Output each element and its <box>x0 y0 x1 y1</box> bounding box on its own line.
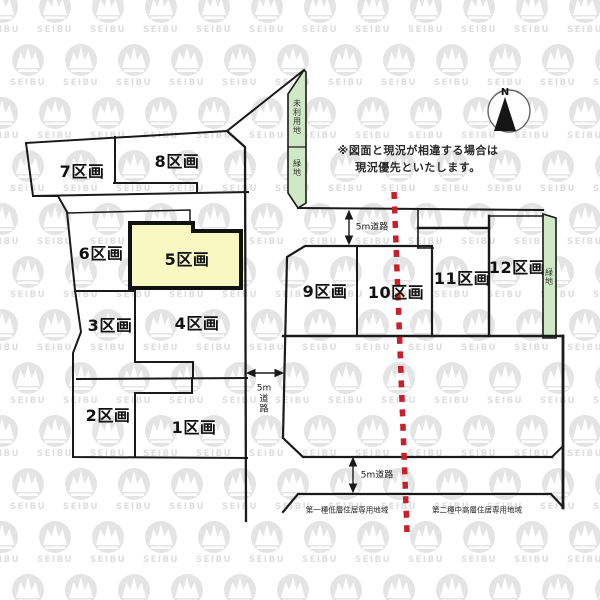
plot-label-3: 3区画 <box>88 312 133 336</box>
plot-label-9: 9区画 <box>303 278 348 302</box>
road-label-left-char1: 道 <box>257 394 272 405</box>
road-label-top: 5m道路 <box>356 220 389 233</box>
plot-label-12: 12区画 <box>489 254 545 278</box>
arrow-top-road <box>346 211 353 244</box>
road-label-bottom: 5m道路 <box>361 468 394 481</box>
left-block-boundaries <box>26 70 304 521</box>
plot-label-5: 5区画 <box>165 246 210 270</box>
compass: N <box>488 87 530 132</box>
plot-label-1: 1区画 <box>172 414 217 438</box>
disclaimer-note: ※図面と現況が相違する場合は 現況優先といたします。 <box>308 143 528 176</box>
plot-label-7: 7区画 <box>60 158 105 182</box>
unused-land-label: 未利用地 <box>292 99 303 135</box>
green-label-right: 緑地 <box>544 268 555 286</box>
arrow-left-road <box>247 370 283 377</box>
plot-label-4: 4区画 <box>175 310 220 334</box>
plot-label-2: 2区画 <box>86 402 131 426</box>
zoning-label-left: 第一種低層住居専用地域 <box>306 505 389 516</box>
plot-label-11: 11区画 <box>434 265 490 289</box>
road-label-left-width: 5m <box>257 383 272 394</box>
arrow-bottom-road <box>350 458 357 492</box>
red-boundary-dotted-line <box>394 192 407 532</box>
green-strip-top <box>288 70 306 208</box>
plot-label-10: 10区画 <box>368 279 424 303</box>
green-label-left: 緑地 <box>292 159 303 177</box>
dimension-arrows <box>247 211 357 492</box>
disclaimer-line-1: ※図面と現況が相違する場合は <box>308 143 528 160</box>
plot-map: SEIBUSEIBUSEIBUSEIBUSEIBUSEIBUSEIBUSEIBU… <box>0 0 600 600</box>
road-label-left-char2: 路 <box>257 404 272 415</box>
road-label-left: 5m 道 路 <box>257 383 272 415</box>
zoning-label-right: 第二種中高層住居専用地域 <box>432 505 522 516</box>
plot-label-8: 8区画 <box>155 148 200 172</box>
north-label: N <box>501 87 509 98</box>
plot-label-6: 6区画 <box>79 240 124 264</box>
disclaimer-line-2: 現況優先といたします。 <box>308 160 528 177</box>
